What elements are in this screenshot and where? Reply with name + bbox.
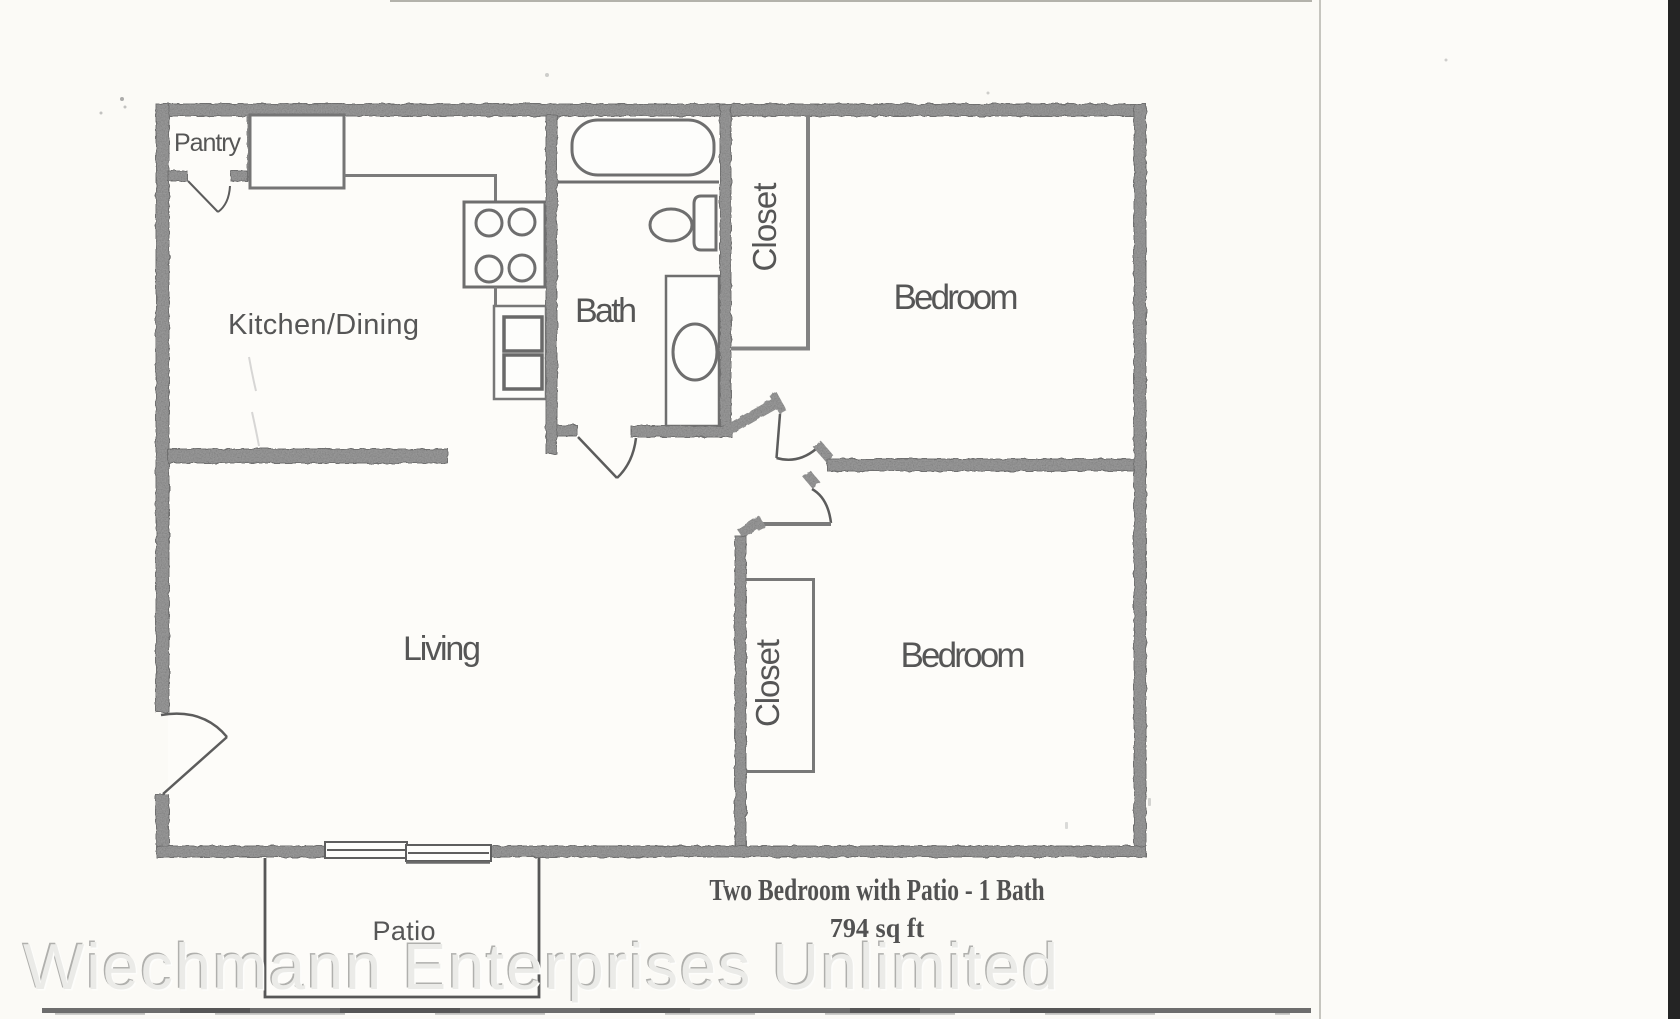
svg-text:Closet: Closet xyxy=(746,183,783,272)
svg-text:Kitchen/Dining: Kitchen/Dining xyxy=(228,309,419,341)
svg-text:Bath: Bath xyxy=(575,292,637,330)
svg-text:Closet: Closet xyxy=(749,639,786,727)
svg-text:Living: Living xyxy=(403,630,481,668)
svg-text:Bedroom: Bedroom xyxy=(901,636,1026,675)
svg-text:Pantry: Pantry xyxy=(174,129,242,157)
svg-text:Two Bedroom with Patio - 1 Bat: Two Bedroom with Patio - 1 Bath xyxy=(709,872,1044,907)
svg-text:Bedroom: Bedroom xyxy=(894,278,1019,317)
svg-text:Wiechmann Enterprises Unlimite: Wiechmann Enterprises Unlimited xyxy=(23,930,1058,1003)
